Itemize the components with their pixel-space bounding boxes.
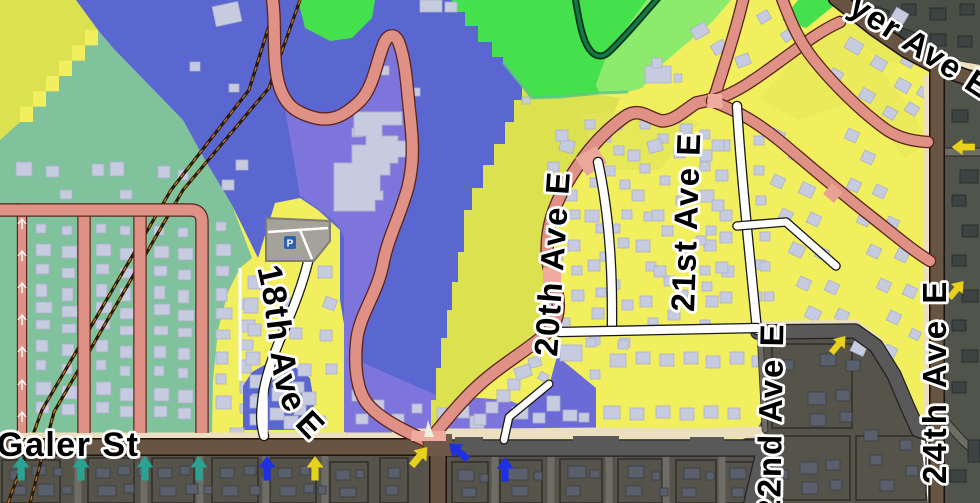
svg-text:24th Ave E: 24th Ave E [916, 278, 953, 484]
svg-text:P: P [287, 239, 294, 250]
svg-text:22nd Ave E: 22nd Ave E [750, 322, 790, 503]
svg-text:21st Ave E: 21st Ave E [664, 132, 707, 313]
svg-text:Galer St: Galer St [0, 426, 139, 464]
